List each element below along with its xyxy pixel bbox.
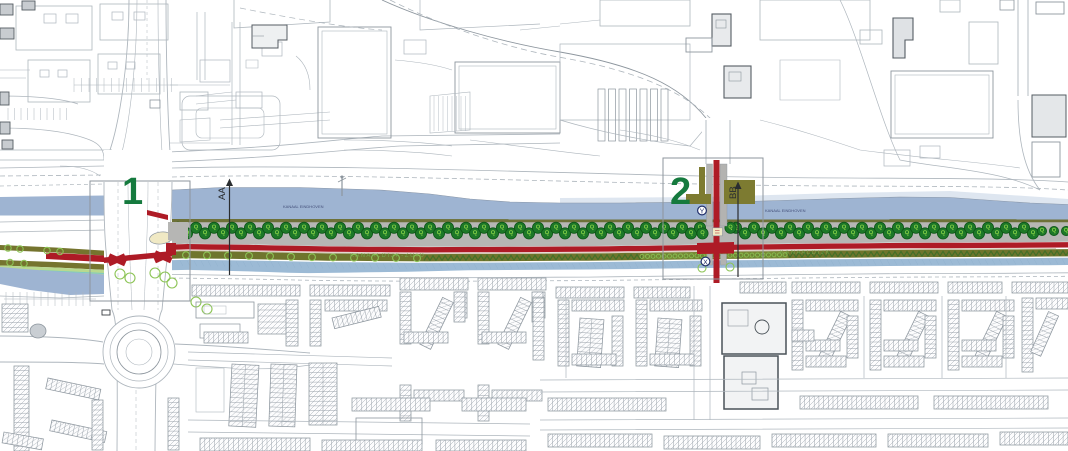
svg-text:K A N A A L D I J K: K A N A A L D I J K — [780, 250, 829, 256]
svg-text:1: 1 — [122, 171, 143, 213]
svg-text:KANAAL EINDHOVEN: KANAAL EINDHOVEN — [765, 208, 806, 213]
svg-text:BB: BB — [728, 186, 739, 199]
svg-text:2: 2 — [670, 171, 691, 213]
svg-text:KANAAL EINDHOVEN: KANAAL EINDHOVEN — [283, 204, 324, 209]
svg-text:AA: AA — [217, 187, 228, 200]
svg-text:K A N A A L D I J K - Z U: K A N A A L D I J K - Z U I D — [350, 253, 424, 259]
svg-text:X: X — [703, 259, 708, 266]
svg-text:Y: Y — [700, 208, 705, 215]
